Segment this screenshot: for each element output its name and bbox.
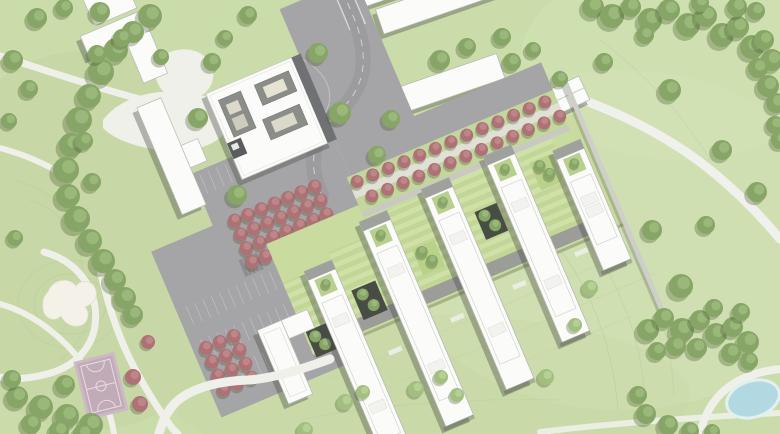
site-plan-svg — [0, 0, 780, 434]
site-plan — [0, 0, 780, 434]
